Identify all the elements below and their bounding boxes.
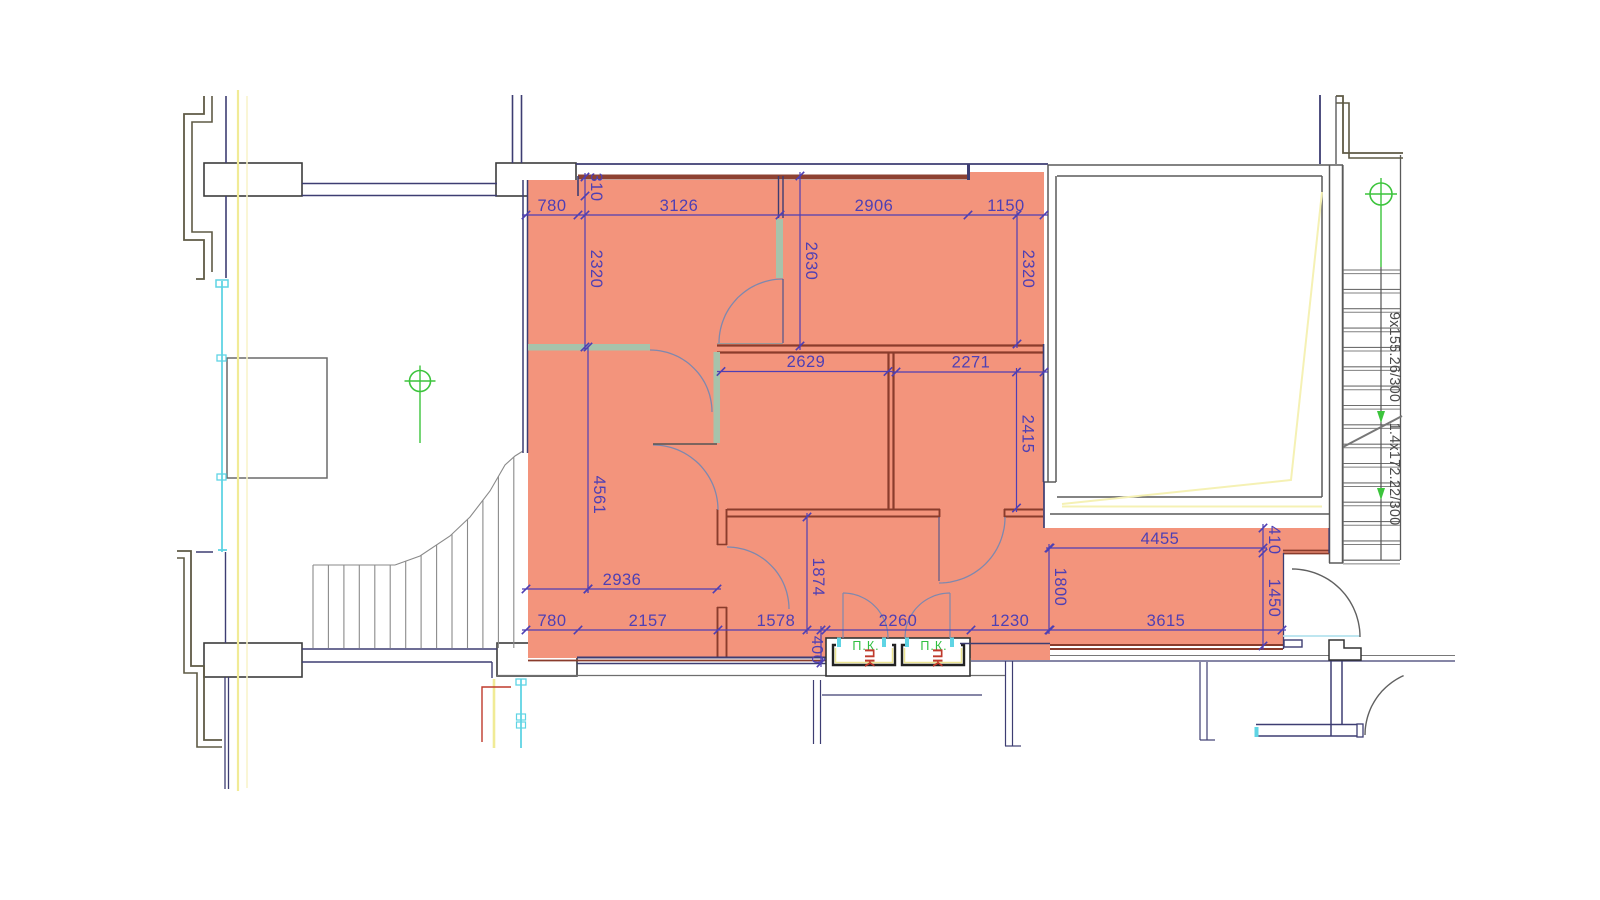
svg-text:2629: 2629 [787, 353, 826, 371]
svg-text:780: 780 [537, 197, 566, 215]
svg-text:1450: 1450 [1265, 579, 1283, 618]
svg-text:2415: 2415 [1019, 415, 1037, 454]
svg-text:1874: 1874 [809, 558, 827, 597]
svg-text:2271: 2271 [952, 354, 991, 372]
svg-text:1800: 1800 [1051, 568, 1069, 607]
svg-text:1230: 1230 [991, 612, 1030, 630]
svg-text:780: 780 [537, 612, 566, 630]
svg-text:2260: 2260 [879, 612, 918, 630]
svg-text:310: 310 [587, 172, 605, 201]
svg-text:2906: 2906 [855, 197, 894, 215]
svg-text:2157: 2157 [629, 612, 668, 630]
svg-text:4561: 4561 [590, 476, 608, 515]
svg-text:2630: 2630 [802, 242, 820, 281]
svg-text:3615: 3615 [1147, 612, 1186, 630]
svg-text:1578: 1578 [757, 612, 796, 630]
svg-text:410: 410 [1265, 525, 1283, 554]
svg-text:1.4x172.22/300: 1.4x172.22/300 [1386, 423, 1402, 526]
svg-text:9x155.26/300: 9x155.26/300 [1386, 312, 1402, 402]
svg-text:4455: 4455 [1141, 530, 1180, 548]
svg-text:ПК: ПК [930, 649, 945, 668]
svg-text:ПК: ПК [862, 649, 877, 668]
svg-text:2936: 2936 [603, 571, 642, 589]
svg-text:2320: 2320 [1019, 250, 1037, 289]
svg-text:3126: 3126 [660, 197, 699, 215]
svg-text:2320: 2320 [587, 250, 605, 289]
svg-text:400: 400 [808, 636, 825, 664]
